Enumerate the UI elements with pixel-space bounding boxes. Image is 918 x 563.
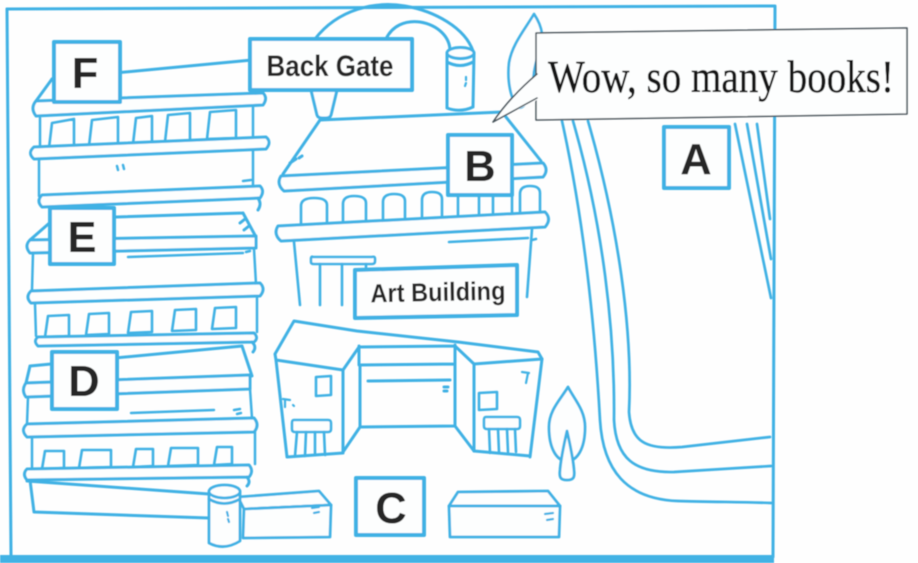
svg-text:Wow, so many books!: Wow, so many books! [548,51,894,102]
svg-text:C: C [375,485,406,533]
svg-text:E: E [67,214,96,262]
svg-text:F: F [72,50,99,98]
svg-text:Art Building: Art Building [370,276,506,309]
svg-text:A: A [680,136,711,184]
svg-text:B: B [464,143,495,191]
svg-text:Back Gate: Back Gate [267,50,394,83]
svg-text:D: D [68,358,99,406]
